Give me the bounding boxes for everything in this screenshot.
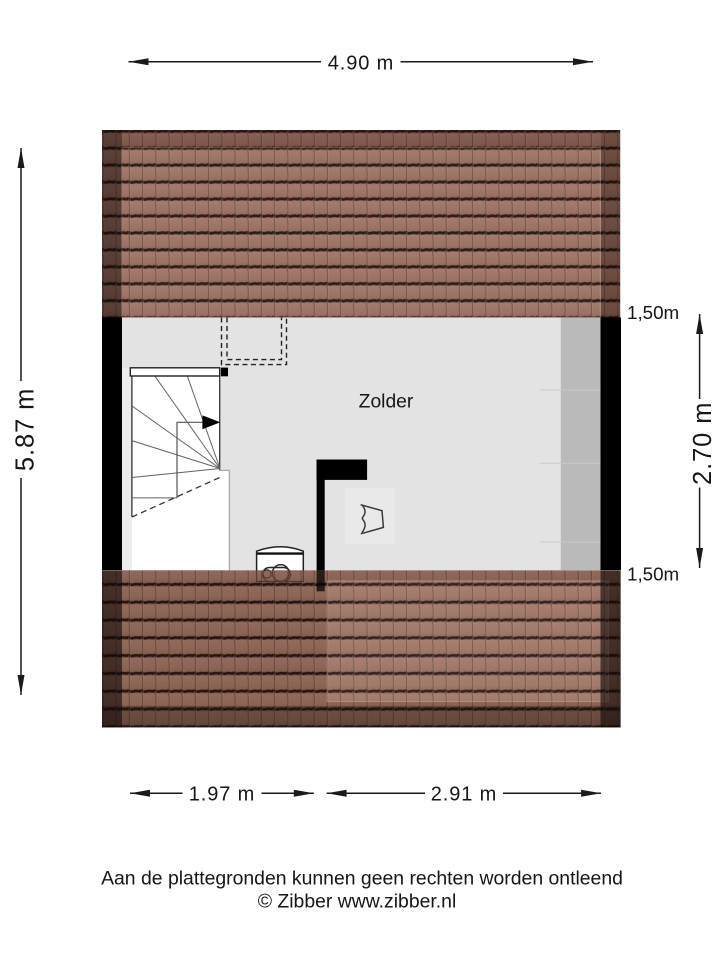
svg-text:Aan de plattegronden kunnen ge: Aan de plattegronden kunnen geen rechten… [101,868,623,890]
svg-text:1,50m: 1,50m [627,302,679,323]
svg-text:Zolder: Zolder [359,392,414,413]
svg-text:2.70 m: 2.70 m [689,402,717,485]
svg-text:1.97 m: 1.97 m [189,783,255,805]
svg-text:5.87 m: 5.87 m [12,388,40,471]
svg-text:4.90 m: 4.90 m [328,52,394,74]
svg-text:2.91 m: 2.91 m [431,783,497,805]
svg-text:1,50m: 1,50m [627,564,679,585]
svg-text:© Zibber www.zibber.nl: © Zibber www.zibber.nl [258,891,457,913]
